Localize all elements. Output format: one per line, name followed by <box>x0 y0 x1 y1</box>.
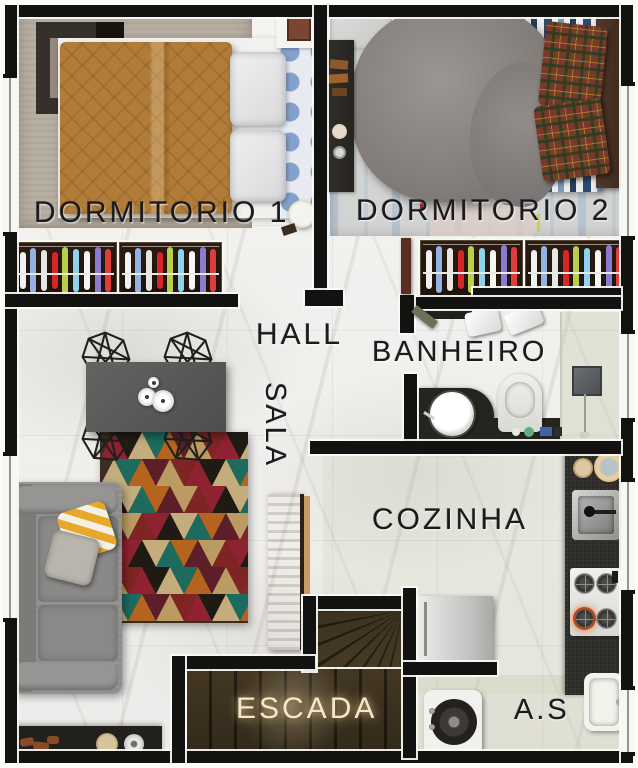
toilet <box>498 374 542 432</box>
hanging-clothes <box>73 249 79 291</box>
hanging-clothes <box>135 248 141 294</box>
kitchen-sink <box>572 490 620 540</box>
hanging-clothes <box>552 248 558 291</box>
wall-segment-bathroom-north <box>408 297 621 309</box>
room-label-dormitorio-2: DORMITORIO 2 <box>356 194 611 228</box>
dorm2-desk-book <box>328 73 349 83</box>
hanging-clothes <box>146 250 152 292</box>
window-pane <box>627 690 629 752</box>
hanging-clothes <box>531 250 537 289</box>
wall-segment <box>172 656 185 763</box>
stove-knob <box>612 571 618 583</box>
window <box>621 330 635 422</box>
dorm2-plaid-pillow <box>538 21 608 111</box>
hanging-clothes <box>41 250 47 292</box>
dorm1-pillow <box>230 130 286 202</box>
room-label-cozinha: COZINHA <box>372 503 528 537</box>
wall-segment-bedroom-divider <box>314 5 327 304</box>
hanging-clothes <box>20 252 26 289</box>
rug-triangle-row <box>100 540 248 567</box>
stove-burner <box>597 609 616 628</box>
hanging-clothes <box>436 246 442 293</box>
hanging-clothes <box>595 250 601 290</box>
washing-machine-door <box>431 699 477 745</box>
shower-stem <box>584 394 586 434</box>
wall-segment <box>404 374 417 451</box>
washing-machine <box>424 690 482 756</box>
dorm2-desk-book <box>330 59 349 70</box>
hanging-clothes <box>606 245 612 293</box>
dorm1-duvet <box>60 42 232 214</box>
hanging-clothes <box>479 248 485 292</box>
rug-triangle-row <box>100 486 248 513</box>
hanging-clothes <box>167 247 173 293</box>
rug-triangle-row <box>100 513 248 540</box>
stove-burner-lit <box>575 609 594 628</box>
rug-triangle-row <box>100 594 248 621</box>
console-item <box>47 736 59 744</box>
wall-segment-bathroom-south <box>310 441 621 454</box>
hanging-clothes <box>157 252 163 290</box>
kitchen-bowl <box>594 452 624 482</box>
hanging-clothes <box>52 252 58 290</box>
hanging-clothes <box>573 246 579 294</box>
fridge-handle <box>424 602 427 656</box>
wall-segment-laundry-north <box>403 662 497 675</box>
hanging-clothes <box>62 247 68 293</box>
sofa-armrest <box>14 662 118 690</box>
window <box>3 74 17 236</box>
washing-machine-knob <box>429 724 435 730</box>
kitchen-sink-basin <box>578 496 614 534</box>
shower-glass-panel <box>560 312 562 441</box>
table-dish-small <box>148 377 159 388</box>
dorm2-desk-bowl <box>332 124 347 139</box>
hanging-clothes <box>563 250 569 289</box>
hanging-clothes <box>584 248 590 292</box>
room-label-dormitorio-1: DORMITORIO 1 <box>34 196 289 230</box>
window <box>621 478 635 594</box>
room-label-as: A.S <box>514 694 570 727</box>
window-pane <box>9 456 11 618</box>
hanging-clothes <box>490 250 496 290</box>
hanging-clothes <box>511 247 517 291</box>
room-label-escada: ESCADA <box>236 692 377 726</box>
hanging-clothes <box>210 249 216 292</box>
dorm1-wardrobe-right <box>119 242 222 299</box>
window <box>621 686 635 756</box>
hanging-clothes <box>426 250 432 289</box>
bathroom-accessory-blue <box>540 427 552 436</box>
hanging-clothes <box>200 247 206 294</box>
wall-segment <box>400 295 414 333</box>
window-pane <box>627 482 629 590</box>
window-pane <box>9 78 11 232</box>
staircase-winders <box>314 607 409 671</box>
sofa-cushion <box>38 605 118 661</box>
shower-drain <box>579 432 590 438</box>
hanging-clothes <box>84 251 90 290</box>
hanging-clothes <box>95 247 101 294</box>
window-pane <box>627 86 629 236</box>
window <box>3 452 17 622</box>
wall-segment <box>5 751 633 763</box>
stove-burner <box>575 574 594 593</box>
washing-machine-knob <box>429 708 435 714</box>
window <box>621 82 635 240</box>
hanging-clothes <box>458 250 464 289</box>
dorm2-plaid-pillow <box>533 98 611 183</box>
rug-triangle-row <box>100 567 248 594</box>
window-pane <box>627 334 629 418</box>
room-label-banheiro: BANHEIRO <box>372 336 547 369</box>
wall-segment <box>178 656 315 669</box>
hanging-clothes <box>541 246 547 293</box>
shower-head <box>572 366 602 396</box>
hanging-clothes <box>189 251 195 290</box>
room-label-sala: SALA <box>258 382 291 468</box>
dorm1-nightstand-box <box>287 15 311 41</box>
dorm2-desk-dish <box>333 146 346 159</box>
bathroom-sink <box>430 392 474 436</box>
wood-console <box>268 494 302 650</box>
hanging-clothes <box>125 252 131 289</box>
hanging-clothes <box>178 249 184 291</box>
hanging-clothes <box>105 249 111 292</box>
fridge <box>417 596 493 662</box>
wall-segment <box>305 290 343 306</box>
wall-segment-stair-north <box>303 596 416 609</box>
room-label-hall: HALL <box>256 318 343 352</box>
hanging-clothes <box>30 248 36 294</box>
wall-segment <box>5 294 238 307</box>
dorm2-desk-book <box>332 88 347 96</box>
kitchen-faucet-knob <box>584 506 595 517</box>
dorm1-wardrobe-left <box>14 242 117 299</box>
hanging-clothes <box>501 245 507 293</box>
hanging-clothes <box>447 248 453 291</box>
kitchen-bowl <box>573 458 593 478</box>
floor-plan: DORMITORIO 1 DORMITORIO 2 HALL BANHEIRO <box>0 0 638 768</box>
bathroom-accessory-dark <box>554 427 562 436</box>
door-leaf-dorm2 <box>401 238 411 294</box>
bathroom-accessory-green <box>524 427 534 437</box>
dorm1-pillow <box>230 52 286 126</box>
table-dish <box>152 390 174 412</box>
bathroom-accessory <box>512 428 520 436</box>
hanging-clothes <box>468 246 474 294</box>
